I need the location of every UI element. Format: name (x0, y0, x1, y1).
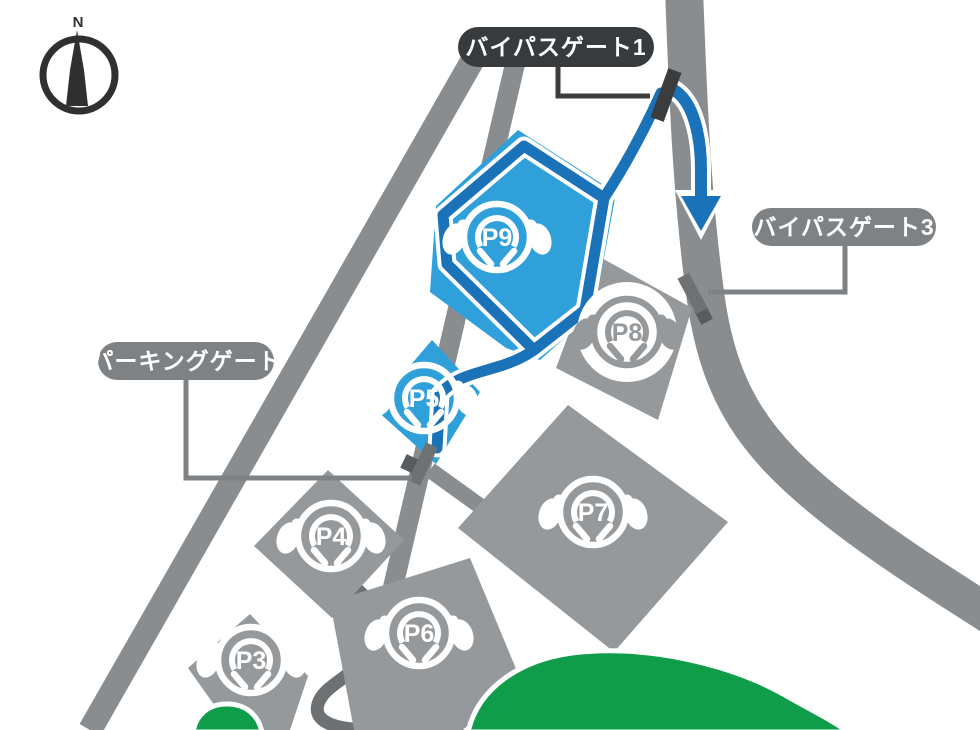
parking-lot-label-p9: P9 (482, 224, 513, 252)
parking-lot-label-p7: P7 (578, 499, 609, 527)
label-bypass-gate-1: バイパスゲート1 (458, 27, 654, 67)
compass: N (43, 14, 115, 111)
parking-map-page: P9 P5 P8 P7 P4 P6 P3 バイパスゲート1 (0, 0, 980, 730)
parking-lot-label-p5: P5 (409, 385, 440, 413)
leader-line-bypass-1 (558, 66, 650, 96)
label-parking-gate: パーキングゲート (90, 342, 281, 380)
label-parking-gate-text: パーキングゲート (90, 348, 281, 374)
road-bypass-right (684, 0, 980, 620)
parking-lot-p7 (458, 405, 728, 652)
label-bypass-gate-3-text: バイパスゲート3 (753, 214, 934, 240)
label-bypass-gate-3: バイパスゲート3 (752, 208, 936, 246)
parking-lot-label-p4: P4 (316, 523, 347, 551)
leader-line-bypass-3 (708, 246, 845, 292)
parking-lot-label-p8: P8 (612, 319, 643, 347)
compass-north-label: N (73, 14, 84, 31)
parking-lot-label-p6: P6 (404, 620, 435, 648)
parking-map: P9 P5 P8 P7 P4 P6 P3 バイパスゲート1 (0, 0, 980, 730)
green-area-large (468, 651, 848, 730)
parking-lot-label-p3: P3 (236, 647, 267, 675)
label-bypass-gate-1-text: バイパスゲート1 (465, 34, 646, 60)
